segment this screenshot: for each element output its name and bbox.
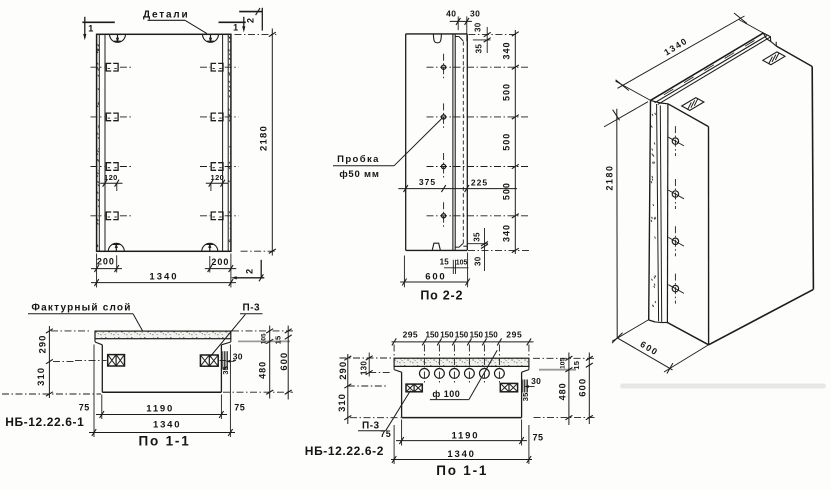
svg-text:295: 295: [403, 329, 418, 339]
svg-text:75: 75: [234, 403, 245, 413]
svg-text:2: 2: [246, 18, 256, 23]
svg-text:480: 480: [257, 361, 267, 379]
svg-text:ф50 мм: ф50 мм: [339, 169, 379, 180]
svg-text:600: 600: [577, 378, 588, 397]
svg-text:35: 35: [473, 232, 482, 242]
svg-text:1340: 1340: [149, 272, 178, 283]
svg-text:500: 500: [501, 83, 511, 101]
svg-text:15: 15: [273, 336, 282, 345]
svg-text:150: 150: [440, 330, 454, 339]
svg-text:Детали: Детали: [143, 9, 189, 20]
svg-text:150: 150: [455, 330, 469, 339]
svg-text:30: 30: [233, 351, 243, 361]
svg-text:105: 105: [260, 333, 267, 344]
svg-text:1340: 1340: [662, 35, 689, 57]
svg-text:По 1-1: По 1-1: [138, 434, 190, 449]
svg-text:НБ-12.22.6-2: НБ-12.22.6-2: [305, 444, 384, 458]
svg-text:75: 75: [380, 429, 391, 439]
svg-text:225: 225: [471, 178, 488, 188]
svg-text:295: 295: [506, 329, 522, 339]
svg-text:40: 40: [446, 8, 456, 18]
svg-text:290: 290: [338, 361, 349, 380]
svg-text:340: 340: [501, 224, 511, 242]
svg-text:600: 600: [279, 352, 290, 371]
svg-text:Фактурный слой: Фактурный слой: [31, 303, 131, 314]
svg-text:30: 30: [473, 22, 482, 32]
svg-text:105: 105: [559, 358, 566, 369]
svg-text:310: 310: [337, 393, 348, 412]
svg-text:1190: 1190: [146, 403, 174, 414]
svg-text:1340: 1340: [153, 420, 181, 431]
svg-text:НБ-12.22.6-1: НБ-12.22.6-1: [5, 415, 84, 429]
svg-text:480: 480: [557, 382, 567, 400]
svg-text:340: 340: [501, 41, 511, 59]
svg-text:310: 310: [36, 367, 47, 386]
svg-text:600: 600: [425, 271, 446, 282]
svg-text:1190: 1190: [451, 431, 479, 442]
svg-text:105: 105: [456, 260, 468, 267]
svg-text:30: 30: [473, 256, 482, 266]
svg-text:35: 35: [221, 366, 230, 375]
svg-text:2180: 2180: [259, 125, 270, 151]
svg-text:200: 200: [97, 257, 115, 267]
svg-text:500: 500: [501, 182, 511, 200]
svg-text:200: 200: [211, 257, 229, 267]
svg-text:15: 15: [572, 361, 581, 370]
svg-text:1: 1: [88, 23, 93, 33]
svg-text:2180: 2180: [605, 165, 615, 191]
svg-text:30: 30: [531, 376, 541, 386]
svg-text:П-3: П-3: [243, 303, 261, 314]
svg-text:ф 100: ф 100: [432, 389, 460, 399]
svg-text:П-3: П-3: [362, 420, 380, 431]
svg-text:150: 150: [426, 330, 440, 339]
svg-text:По 1-1: По 1-1: [436, 463, 488, 478]
svg-text:По 2-2: По 2-2: [420, 288, 463, 302]
svg-text:2: 2: [244, 269, 254, 274]
svg-text:375: 375: [419, 177, 436, 187]
svg-text:1: 1: [233, 22, 238, 32]
svg-text:150: 150: [484, 330, 498, 339]
svg-text:35: 35: [521, 393, 530, 402]
svg-text:1340: 1340: [447, 449, 475, 460]
svg-text:30: 30: [470, 8, 480, 18]
svg-text:150: 150: [470, 330, 484, 339]
svg-text:600: 600: [639, 339, 661, 358]
svg-text:75: 75: [79, 402, 90, 412]
svg-text:75: 75: [532, 432, 543, 442]
svg-text:35: 35: [474, 44, 483, 54]
svg-text:500: 500: [501, 133, 511, 151]
svg-text:15: 15: [440, 258, 450, 267]
svg-text:130: 130: [360, 361, 369, 375]
svg-text:Пробка: Пробка: [337, 154, 380, 165]
svg-text:290: 290: [37, 335, 48, 354]
